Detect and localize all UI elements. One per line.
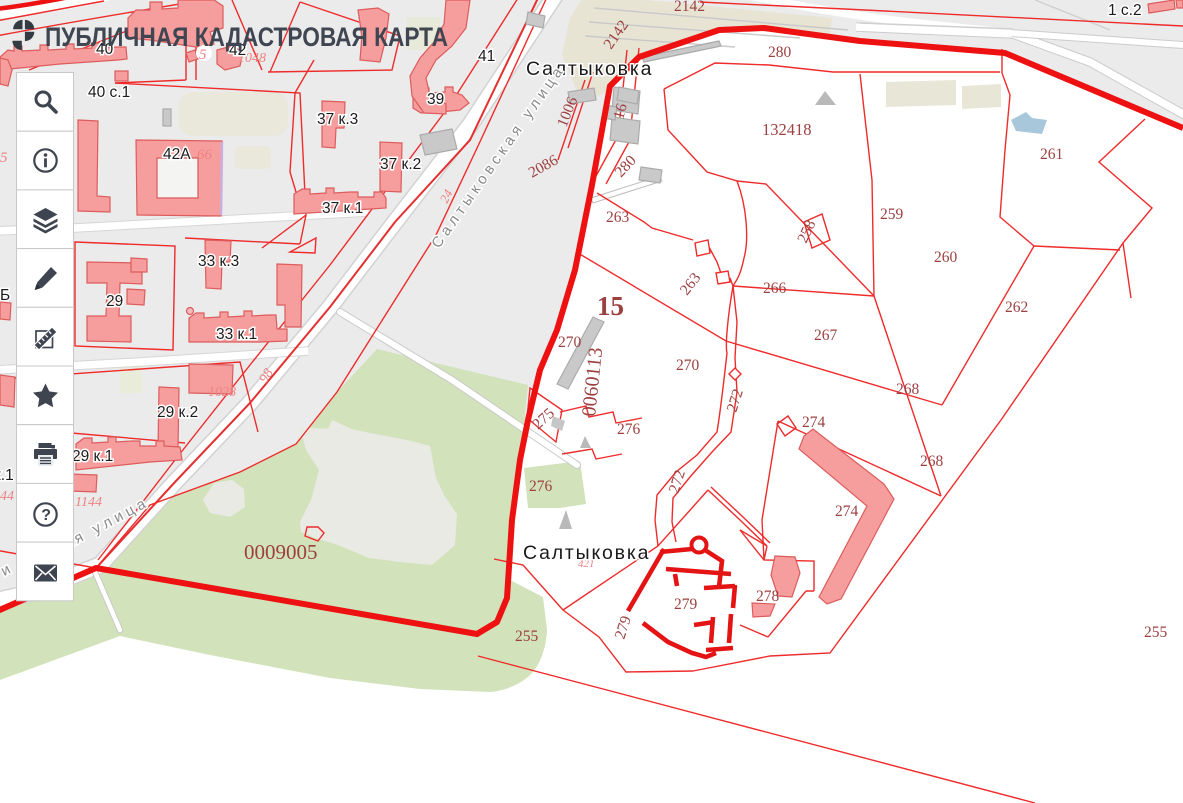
svg-text:39: 39	[427, 91, 444, 108]
svg-text:к.1: к.1	[0, 467, 14, 484]
svg-text:29: 29	[106, 293, 123, 310]
svg-text:260: 260	[934, 249, 958, 266]
svg-text:41: 41	[478, 48, 495, 65]
svg-text:66: 66	[197, 147, 213, 163]
svg-text:274: 274	[835, 503, 859, 520]
svg-text:33 к.1: 33 к.1	[216, 326, 257, 343]
svg-text:29 к.2: 29 к.2	[157, 404, 198, 421]
svg-text:261: 261	[1040, 146, 1063, 163]
svg-text:1028: 1028	[208, 385, 236, 400]
svg-text:255: 255	[515, 628, 539, 645]
svg-text:268: 268	[896, 381, 920, 398]
svg-text:2142: 2142	[674, 0, 705, 15]
svg-text:Б: Б	[0, 287, 10, 304]
svg-text:280: 280	[768, 44, 792, 61]
svg-text:0009005: 0009005	[244, 540, 318, 564]
svg-text:263: 263	[606, 209, 630, 226]
svg-text:268: 268	[920, 453, 944, 470]
svg-text:262: 262	[1005, 299, 1028, 316]
svg-text:Салтыковка: Салтыковка	[523, 542, 650, 564]
svg-text:259: 259	[880, 206, 904, 223]
svg-text:37 к.3: 37 к.3	[317, 111, 358, 128]
svg-text:276: 276	[617, 421, 641, 438]
svg-text:5: 5	[0, 150, 8, 166]
svg-text:33 к.3: 33 к.3	[198, 253, 239, 270]
svg-text:270: 270	[676, 357, 700, 374]
svg-text:267: 267	[814, 327, 838, 344]
svg-text:40 с.1: 40 с.1	[88, 84, 130, 101]
svg-text:42А: 42А	[163, 146, 191, 163]
svg-text:279: 279	[674, 596, 698, 613]
svg-text:ПУБЛИЧНАЯ КАДАСТРОВАЯ КАРТА: ПУБЛИЧНАЯ КАДАСТРОВАЯ КАРТА	[45, 22, 448, 52]
svg-text:1 с.2: 1 с.2	[1108, 2, 1142, 19]
svg-text:132418: 132418	[762, 120, 812, 139]
svg-text:37 к.2: 37 к.2	[380, 156, 421, 173]
svg-text:144: 144	[0, 489, 14, 504]
svg-text:?: ?	[41, 507, 51, 524]
svg-text:37 к.1: 37 к.1	[322, 200, 363, 217]
svg-text:1144: 1144	[75, 495, 102, 510]
svg-text:276: 276	[529, 478, 553, 495]
svg-text:15: 15	[597, 291, 624, 321]
svg-text:255: 255	[1144, 624, 1168, 641]
svg-text:270: 270	[558, 334, 582, 351]
svg-text:278: 278	[756, 588, 780, 605]
svg-text:29 к.1: 29 к.1	[72, 448, 113, 465]
svg-text:266: 266	[763, 280, 787, 297]
svg-text:274: 274	[802, 414, 826, 431]
